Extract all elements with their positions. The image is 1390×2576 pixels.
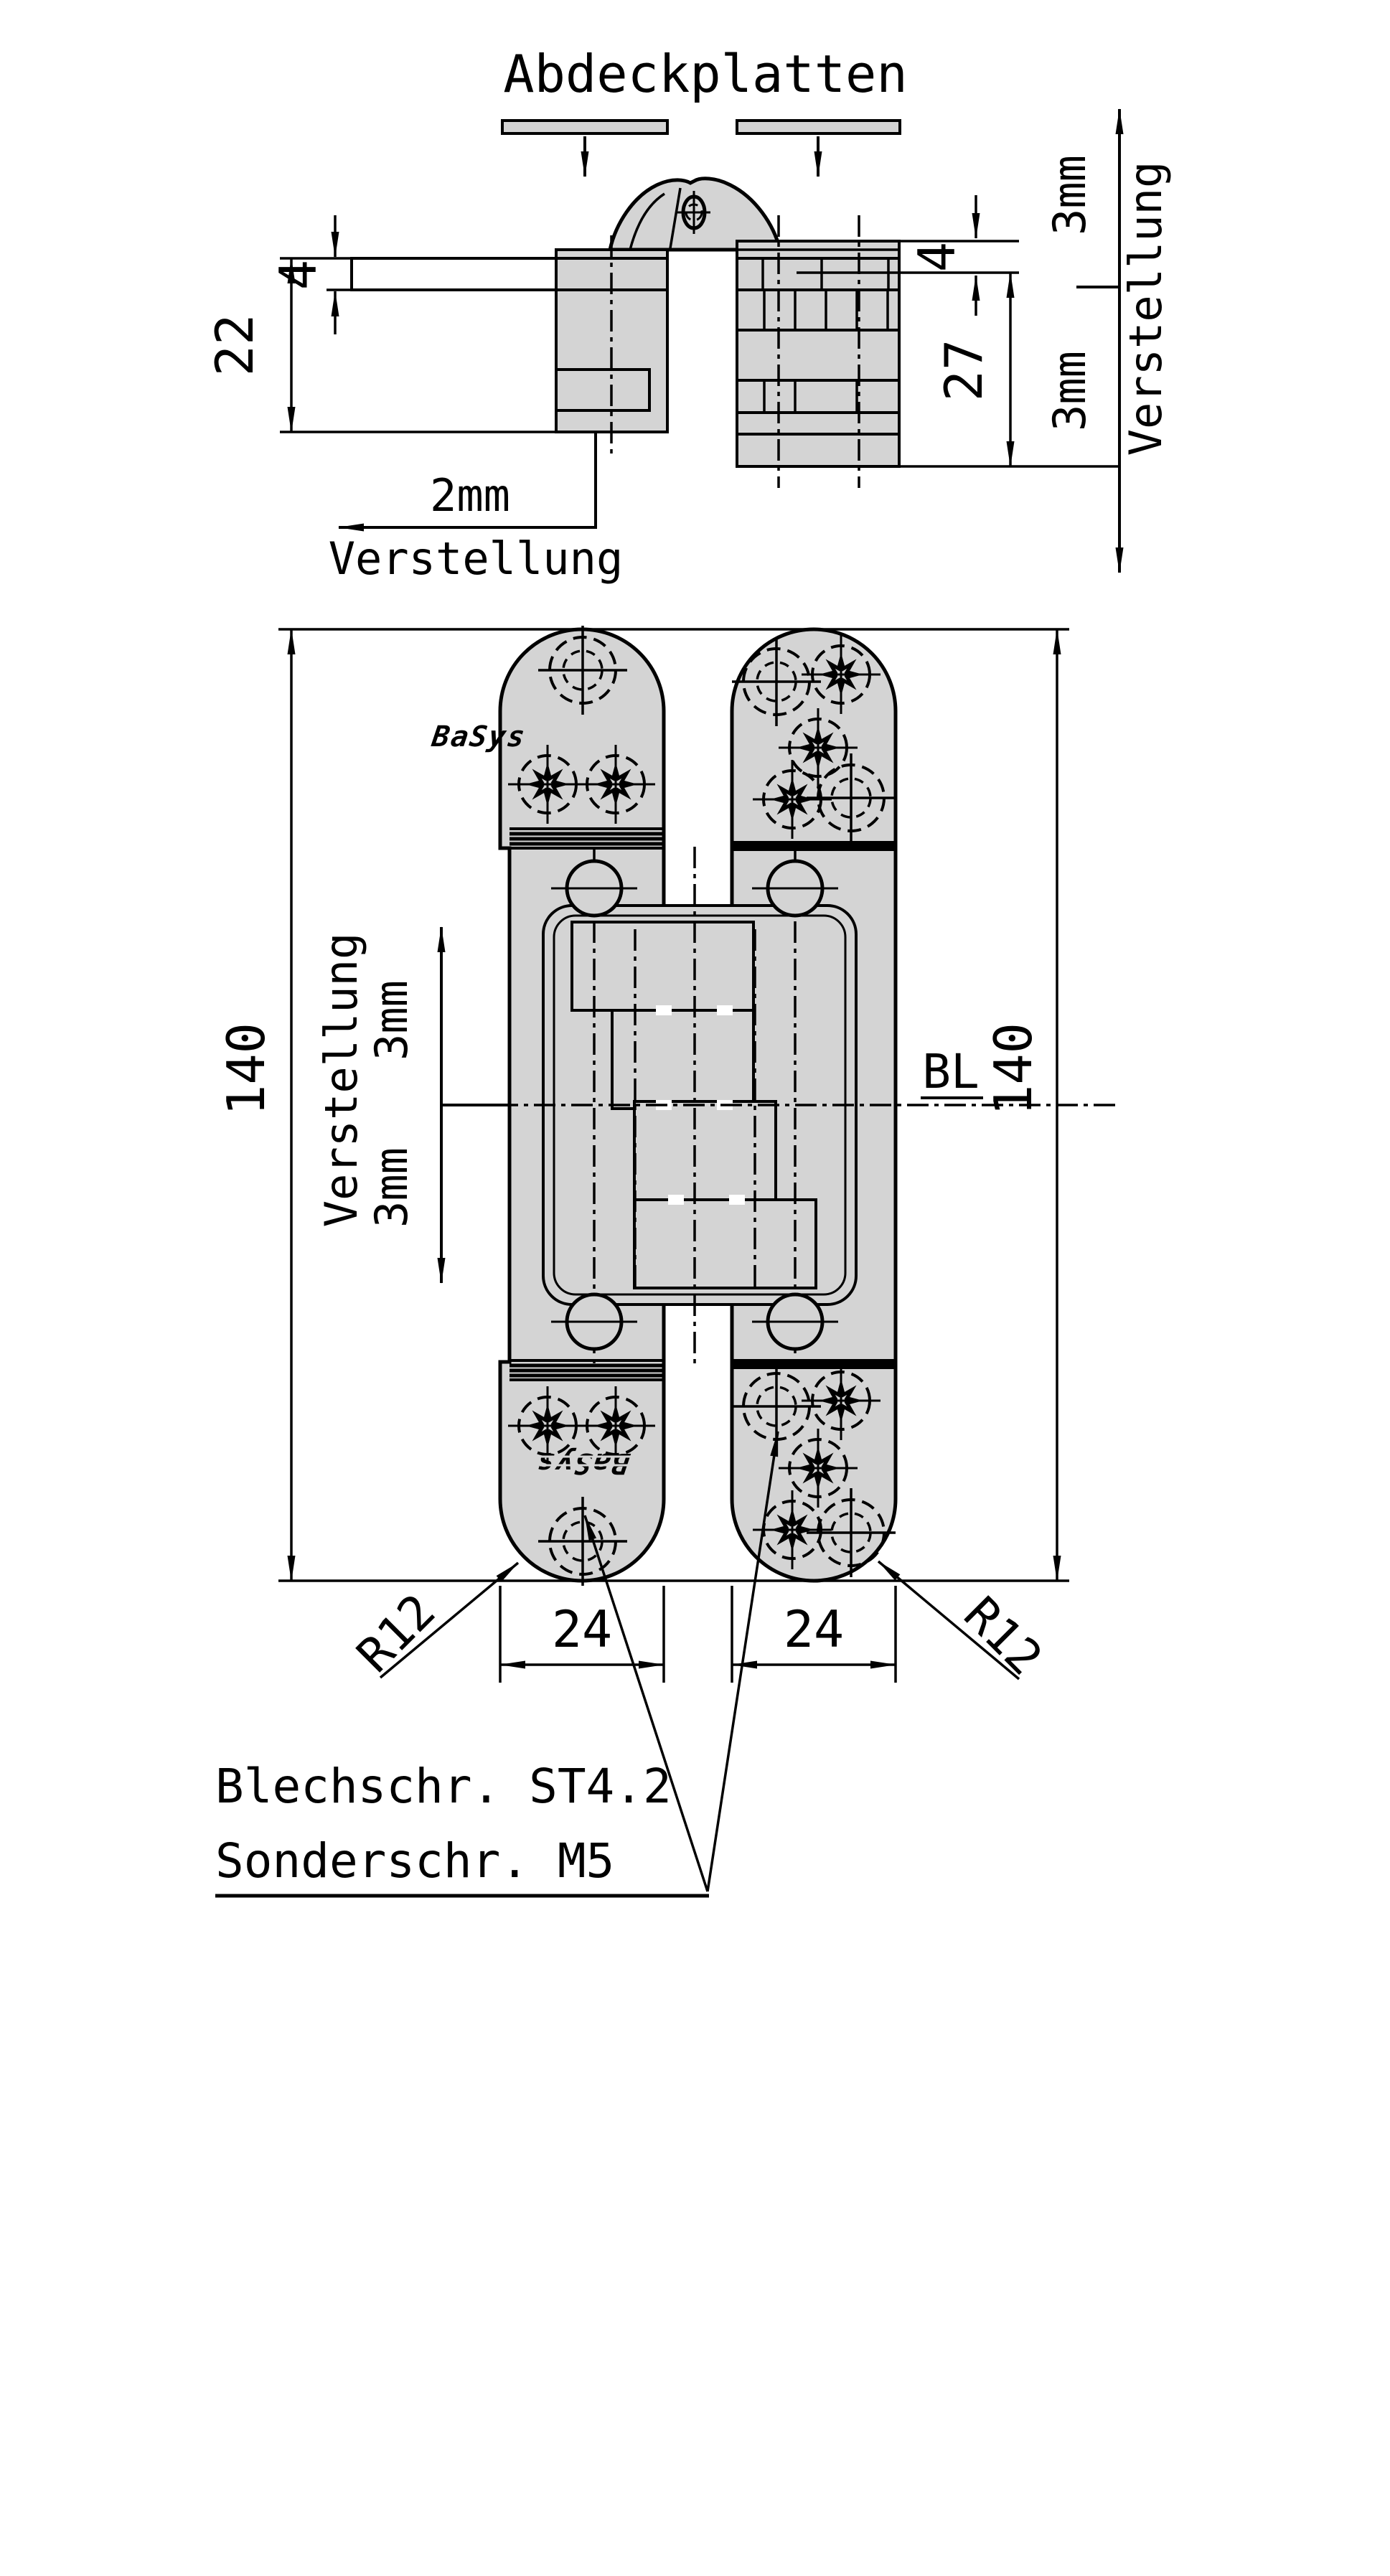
cover-plate-left	[502, 121, 667, 133]
hinge-knuckle	[610, 179, 780, 250]
dimension-4-left: 4	[269, 215, 353, 334]
dim-27-label: 27	[934, 339, 994, 402]
leader-2mm-verstellung: 2mm Verstellung	[329, 432, 624, 585]
drawing-page: Abdeckplatten	[0, 0, 1390, 2576]
logo-text-top: BaSys	[429, 720, 528, 753]
left-thin-plate	[352, 258, 556, 290]
r12-left-label: R12	[347, 1584, 446, 1683]
front-adjust-3mm-top: 3mm	[365, 980, 418, 1061]
seam-band-right-top	[732, 841, 896, 851]
brand-logo-bottom: BaSys	[533, 1447, 633, 1480]
dim-24-right-label: 24	[784, 1600, 844, 1659]
dim-140-right-label: 140	[983, 1023, 1043, 1116]
bl-label: BL	[922, 1044, 979, 1099]
adjust-label-right: Verstellung	[1119, 161, 1172, 456]
dim-140-left-label: 140	[216, 1023, 276, 1116]
dimension-24-right: 24	[732, 1586, 896, 1683]
front-adjust-label: Verstellung	[315, 933, 367, 1228]
dim-4-left-label: 4	[269, 260, 328, 290]
dim-24-left-label: 24	[552, 1600, 612, 1659]
dim-22-label: 22	[205, 314, 265, 377]
section-right-body	[737, 215, 899, 488]
dim-4-right-label: 4	[908, 242, 967, 272]
dimension-24-left: 24	[500, 1586, 664, 1683]
vertical-adjust-right: 3mm 3mm Verstellung	[1043, 109, 1172, 573]
leader-2mm-value: 2mm	[430, 469, 510, 522]
note-line2: Sonderschr. M5	[215, 1833, 614, 1889]
screw-note: Blechschr. ST4.2 Sonderschr. M5	[215, 1432, 778, 1896]
vertical-adjust-front: Verstellung 3mm 3mm	[315, 927, 509, 1283]
note-line1: Blechschr. ST4.2	[215, 1759, 672, 1814]
section-title: Abdeckplatten	[503, 44, 908, 104]
front-view: BL Verstellung 3mm 3mm 140 140	[215, 626, 1119, 1896]
dimension-140-left: 140	[216, 629, 291, 1581]
cover-plate-right	[737, 121, 900, 133]
r12-right-label: R12	[954, 1587, 1053, 1686]
logo-text-bottom: BaSys	[533, 1447, 632, 1480]
front-adjust-3mm-bottom: 3mm	[365, 1147, 418, 1228]
seam-band-right-bottom	[732, 1359, 896, 1369]
section-view: Abdeckplatten	[205, 44, 1172, 585]
section-left-body	[352, 235, 667, 455]
dimension-140-right: 140	[983, 629, 1057, 1581]
technical-drawing: Abdeckplatten	[0, 0, 1390, 2576]
leader-2mm-label: Verstellung	[329, 532, 624, 585]
adjust-3mm-bottom: 3mm	[1043, 351, 1096, 431]
adjust-3mm-top: 3mm	[1043, 155, 1096, 235]
